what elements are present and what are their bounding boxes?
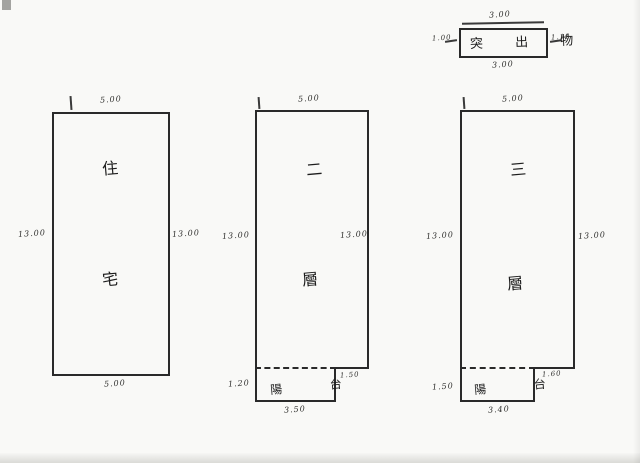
protrusion-dim-left: 1.00	[432, 33, 452, 42]
dimension-tick	[463, 97, 466, 109]
unit2-dim-top: 5.00	[298, 93, 320, 103]
dimension-tick	[70, 96, 73, 110]
unit1-dim-top: 5.00	[100, 94, 122, 104]
unit2-balcony-dim-left: 1.20	[228, 378, 250, 388]
unit2-label-char-1: 二	[305, 155, 323, 180]
scan-edge-shadow-right	[633, 0, 640, 463]
unit2-outline	[255, 110, 369, 369]
unit1-dim-bottom: 5.00	[104, 378, 126, 388]
unit2-label-char-2: 層	[301, 265, 319, 290]
unit3-dim-top: 5.00	[502, 93, 524, 103]
unit2-dim-left: 13.00	[222, 230, 250, 241]
protrusion-dim-bottom: 3.00	[492, 59, 514, 69]
protrusion-label: 突 出 物	[461, 29, 547, 59]
unit2-balcony-dim-bottom: 3.50	[284, 404, 306, 414]
unit3-step-dim: 1.60	[542, 369, 562, 378]
dimension-tick	[258, 97, 261, 109]
dimension-line	[462, 21, 544, 24]
unit3-dim-right: 13.00	[578, 230, 606, 241]
unit3-balcony-dim-left: 1.50	[432, 381, 454, 391]
unit3-dim-left: 13.00	[426, 230, 454, 241]
unit3-balcony-dim-bottom: 3.40	[488, 404, 510, 414]
unit2-dim-right: 13.00	[340, 229, 368, 240]
scan-edge-shadow-bottom	[0, 453, 640, 463]
unit3-bottom-step-line	[533, 367, 575, 369]
unit1-label-char-1: 住	[101, 154, 119, 179]
unit1-dim-left: 13.00	[18, 228, 46, 239]
unit3-outline	[460, 110, 575, 369]
unit2-bottom-step-line	[334, 367, 369, 369]
unit1-dim-right: 13.00	[172, 228, 200, 239]
unit3-label-char-2: 層	[506, 269, 524, 294]
unit1-outline	[52, 112, 170, 376]
unit1-label-char-2: 宅	[101, 265, 119, 290]
protrusion-dim-right: 1.10	[551, 32, 571, 41]
protrusion-dim-top: 3.00	[489, 9, 511, 19]
scan-artifact	[2, 0, 11, 10]
protrusion-outline: 突 出 物	[459, 28, 548, 58]
unit3-label-char-1: 三	[509, 155, 527, 180]
unit2-step-dim: 1.50	[340, 370, 360, 379]
floor-plan-scan: 3.00 突 出 物 3.00 1.00 1.10 5.00 住 宅 13.00…	[0, 0, 640, 463]
